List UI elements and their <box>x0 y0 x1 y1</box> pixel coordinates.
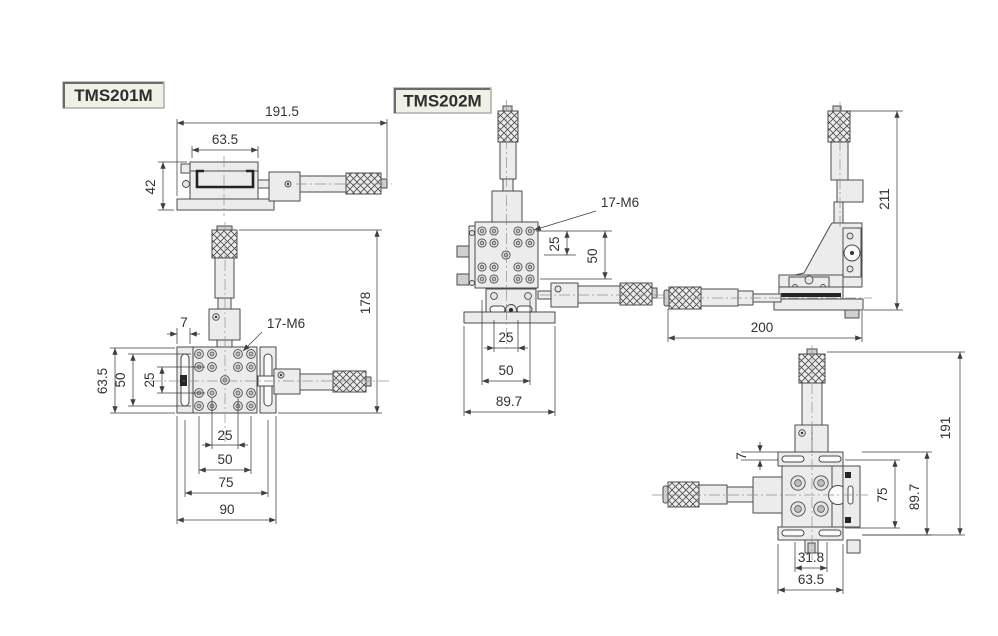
foot-block <box>847 540 860 553</box>
micrometer-barrel <box>215 258 234 298</box>
dim-text-211: 211 <box>877 188 892 210</box>
mount-screw-center <box>287 183 289 185</box>
micrometer-barrel <box>699 485 727 504</box>
micrometer-spindle <box>834 202 843 223</box>
tms201m-plan-view: 7 17-M6 178 63.5 50 25 25 50 75 90 <box>95 222 392 524</box>
dim-text-31-8: 31.8 <box>798 550 824 565</box>
tms201m-side-view: 63.5 191.5 42 <box>143 104 392 216</box>
micrometer-barrel <box>300 374 333 390</box>
m6-hole-center <box>528 265 532 269</box>
mount-screw-center <box>215 316 217 318</box>
counterbore-hole-center <box>818 506 825 513</box>
counterbore-hole-center <box>818 480 825 487</box>
mount-slot <box>782 456 804 462</box>
mount-slot <box>819 530 841 536</box>
base-plate <box>464 312 555 323</box>
dim-text-178: 178 <box>358 292 373 315</box>
micrometer-mount-block <box>269 172 300 201</box>
bracket-screw <box>805 276 813 284</box>
tms202m-label: TMS202M <box>403 92 481 111</box>
dim-text-75: 75 <box>875 487 890 502</box>
m6-hole-center <box>492 229 496 233</box>
m6-hole-center <box>480 265 484 269</box>
micrometer-spindle <box>258 180 270 188</box>
dim-text-63-5: 63.5 <box>95 368 110 394</box>
hole-callout-17-M6: 17-M6 <box>267 316 305 331</box>
edge-screw <box>470 231 475 236</box>
micrometer-mount-block <box>837 180 863 202</box>
dim-text-50: 50 <box>217 452 232 467</box>
dim-text-42: 42 <box>143 179 158 194</box>
center-bore-hole <box>509 308 513 312</box>
m6-hole-center <box>249 404 253 408</box>
bracket-screw <box>845 472 851 478</box>
tms201m-label: TMS201M <box>74 86 152 105</box>
dim-text-50: 50 <box>498 363 513 378</box>
m6-hole-center <box>210 352 214 356</box>
dovetail-strip <box>781 293 841 297</box>
m6-hole-center <box>516 265 520 269</box>
dim-text-25: 25 <box>217 428 232 443</box>
micrometer-step <box>218 298 231 309</box>
micrometer-tip <box>663 486 668 503</box>
bracket-screw <box>847 233 853 239</box>
dim-text-63-5: 63.5 <box>798 572 824 587</box>
m6-hole-center <box>210 391 214 395</box>
bracket-screw <box>491 293 498 300</box>
m6-hole-center <box>197 404 201 408</box>
tms201m-label-box: TMS201M <box>63 82 164 108</box>
base-plate <box>774 299 863 310</box>
bracket-screw <box>847 266 853 272</box>
lock-knob <box>457 246 469 257</box>
m6-hole-center <box>528 229 532 233</box>
hole-callout-17-M6: 17-M6 <box>601 195 639 210</box>
technical-drawing-page: TMS201M TMS202M 63.5 191.5 42 <box>0 0 998 636</box>
m6-hole-center <box>492 241 496 245</box>
micrometer-tip <box>381 179 387 188</box>
lock-screw <box>183 181 190 188</box>
micrometer-knurled-knob <box>212 230 237 258</box>
micrometer-cap <box>503 106 512 111</box>
micrometer-knurled-knob <box>828 111 850 142</box>
micrometer-mount-block <box>795 425 828 452</box>
dim-text-191: 191 <box>938 417 953 440</box>
stage-body <box>782 466 832 527</box>
dim-text-7: 7 <box>180 315 188 330</box>
m6-hole-center <box>516 277 520 281</box>
micrometer-barrel <box>500 142 516 179</box>
m6-hole-center <box>516 241 520 245</box>
tms202m-side-view: 211 200 <box>655 102 903 342</box>
dim-text-191-5: 191.5 <box>265 104 299 119</box>
m6-hole-center <box>236 352 240 356</box>
tms202m-label-box: TMS202M <box>394 88 491 113</box>
micrometer-knurled-knob <box>498 111 518 142</box>
micrometer-step <box>503 179 513 191</box>
micrometer-barrel <box>578 286 620 303</box>
micrometer-barrel <box>831 142 848 180</box>
mount-screw-center <box>280 374 282 376</box>
micrometer-mount-block <box>209 309 240 340</box>
micrometer-tip <box>652 288 657 298</box>
m6-hole-center <box>249 365 253 369</box>
lock-clamp <box>180 375 187 386</box>
foot-block <box>845 310 859 318</box>
stage-base-plate <box>177 199 274 210</box>
dim-text-25: 25 <box>498 330 513 345</box>
extension-lines <box>177 328 190 344</box>
lock-knob <box>457 274 469 285</box>
m6-hole-center <box>249 391 253 395</box>
m6-hole-center <box>516 229 520 233</box>
counterbore-hole-center <box>795 480 802 487</box>
mount-screw <box>555 286 561 292</box>
m6-hole-center <box>492 265 496 269</box>
bracket-screw <box>845 517 851 523</box>
m6-hole-center <box>236 365 240 369</box>
micrometer-knurled-knob <box>346 173 381 194</box>
adjust-knob-center <box>850 251 854 255</box>
micrometer-mount-block <box>274 369 300 394</box>
counterbore-hole-center <box>795 506 802 513</box>
micrometer-step <box>727 487 753 502</box>
tms202m-front-view: 17-M6 25 50 25 50 89.7 <box>457 100 668 416</box>
dim-text-63-5: 63.5 <box>212 132 238 147</box>
micrometer-knurled-knob <box>333 371 366 392</box>
extension-lines <box>192 146 258 158</box>
m6-hole-center <box>236 391 240 395</box>
tms202m-top-view: 7 75 89.7 191 31.8 63.5 <box>652 345 965 594</box>
drawing-canvas: TMS201M TMS202M 63.5 191.5 42 <box>0 0 998 636</box>
micrometer-knurled-knob <box>620 283 652 305</box>
dim-text-50: 50 <box>113 372 128 387</box>
micrometer-mount-block <box>492 191 522 222</box>
mount-screw-center <box>801 432 803 434</box>
m6-hole-center <box>197 352 201 356</box>
micrometer-tip <box>366 377 371 386</box>
dim-text-89-7: 89.7 <box>907 484 922 510</box>
dim-text-7: 7 <box>734 452 749 460</box>
m6-hole-center <box>480 241 484 245</box>
micrometer-knurled-knob <box>668 482 699 507</box>
micrometer-neck <box>217 340 232 347</box>
m6-hole-center <box>249 352 253 356</box>
dim-text-25: 25 <box>547 236 562 251</box>
dim-text-90: 90 <box>219 502 234 517</box>
edge-screw <box>470 281 475 286</box>
m6-hole-center <box>492 277 496 281</box>
leader-line <box>534 211 596 230</box>
dim-text-75: 75 <box>218 475 233 490</box>
dim-text-25: 25 <box>142 372 157 387</box>
m6-hole-center <box>504 253 508 257</box>
dim-text-50: 50 <box>585 248 600 263</box>
side-tab <box>181 164 190 173</box>
mount-slot <box>819 456 841 462</box>
m6-hole-center <box>528 277 532 281</box>
dim-text-200: 200 <box>751 320 774 335</box>
m6-hole-center <box>480 229 484 233</box>
dim-text-89-7: 89.7 <box>496 394 522 409</box>
mount-slot <box>782 530 804 536</box>
bracket-screw <box>525 293 532 300</box>
m6-hole-center <box>210 365 214 369</box>
m6-hole-center <box>528 241 532 245</box>
micrometer-barrel <box>701 289 738 306</box>
m6-hole-center <box>480 277 484 281</box>
